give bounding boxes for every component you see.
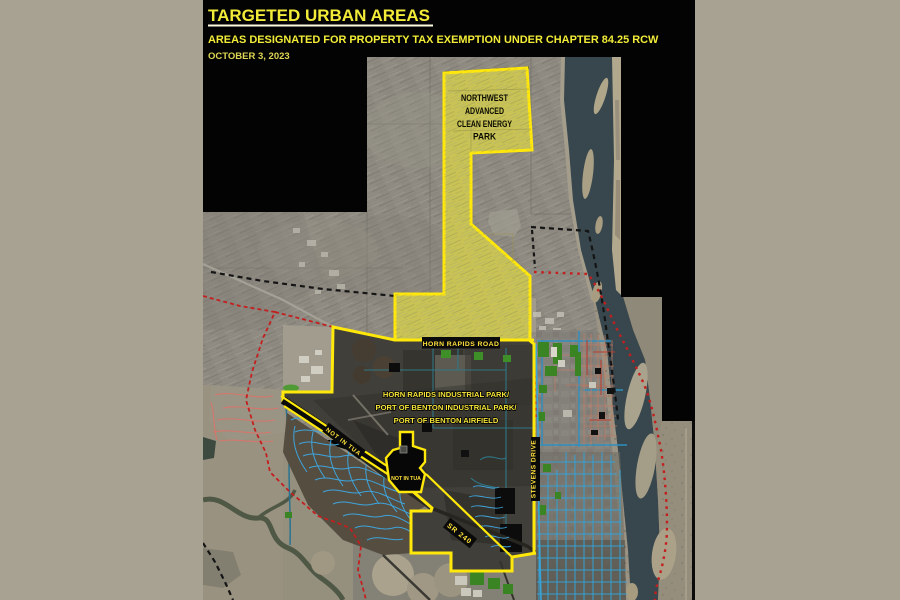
svg-text:PORT OF BENTON INDUSTRIAL PARK: PORT OF BENTON INDUSTRIAL PARK/ [376, 403, 518, 412]
svg-text:TARGETED URBAN AREAS: TARGETED URBAN AREAS [208, 6, 430, 25]
svg-text:STEVENS DRIVE: STEVENS DRIVE [531, 440, 538, 499]
svg-text:NORTHWEST: NORTHWEST [461, 93, 508, 103]
svg-text:OCTOBER 3, 2023: OCTOBER 3, 2023 [208, 51, 290, 62]
svg-text:PORT OF BENTON AIRFIELD: PORT OF BENTON AIRFIELD [394, 416, 499, 425]
svg-text:AREAS DESIGNATED FOR PROPERTY: AREAS DESIGNATED FOR PROPERTY TAX EXEMPT… [208, 34, 659, 46]
svg-text:HORN RAPIDS INDUSTRIAL PARK/: HORN RAPIDS INDUSTRIAL PARK/ [383, 390, 510, 399]
svg-text:PARK: PARK [473, 132, 496, 142]
svg-text:ADVANCED: ADVANCED [465, 106, 504, 116]
svg-text:NOT IN TUA: NOT IN TUA [391, 476, 421, 482]
svg-text:HORN RAPIDS ROAD: HORN RAPIDS ROAD [423, 341, 500, 348]
svg-text:CLEAN ENERGY: CLEAN ENERGY [457, 119, 512, 129]
